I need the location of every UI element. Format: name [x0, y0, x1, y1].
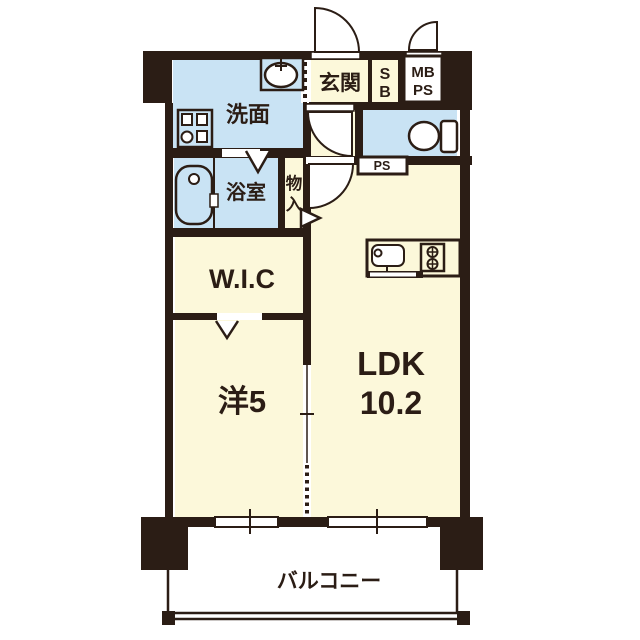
- entrance-step: [306, 104, 354, 111]
- toilet-tank: [441, 121, 457, 152]
- entrance-threshold: [311, 52, 360, 59]
- wall-bottom-a: [188, 517, 215, 527]
- entrance-label: 玄関: [319, 71, 361, 95]
- pipespace-label: PS: [374, 159, 391, 173]
- washer-pan-corner-tl: [182, 114, 192, 125]
- ldk-label-line2: 10.2: [360, 385, 422, 421]
- sliding-window-left: [215, 517, 278, 527]
- washing-machine-icon: [178, 110, 212, 147]
- meterbox-label-line1: MB: [411, 64, 434, 81]
- wic-label: W.I.C: [209, 264, 275, 294]
- wic-door-opening: [217, 313, 262, 320]
- kitchen-counter-icon: [367, 240, 460, 278]
- wall-left: [165, 103, 173, 517]
- balcony-label: バルコニー: [277, 570, 382, 593]
- bath-door-handle: [210, 194, 218, 207]
- ldk-label-line1: LDK: [357, 345, 425, 382]
- ldk-door-opening: [306, 157, 354, 164]
- kitchen-faucet-circle: [375, 250, 382, 257]
- ldk-floor: [311, 165, 460, 517]
- pillar-bottom-right: [440, 517, 483, 570]
- toilet-bowl: [409, 122, 439, 150]
- bathroom-label: 浴室: [226, 180, 266, 204]
- railing-foot-right: [457, 611, 470, 625]
- entrance-door-arc: [315, 8, 359, 52]
- western-room-label: 洋5: [218, 384, 266, 419]
- washer-drain-circle: [182, 132, 193, 143]
- wall-storage-left: [278, 158, 285, 228]
- wall-entrance-sb: [368, 60, 372, 103]
- storage-label-line2: 入: [286, 195, 303, 214]
- meterbox-door-arc: [409, 22, 437, 50]
- wall-right: [460, 60, 470, 517]
- shoebox-label-line1: S: [380, 66, 391, 83]
- washer-pan-corner-tr: [197, 114, 207, 125]
- railing-foot-left: [162, 611, 175, 625]
- shoebox-label-line2: B: [379, 84, 391, 101]
- floorplan: 洗面 玄関 S B MB PS PS 浴室 物 入 W.I.C 洋5 LDK 1…: [0, 0, 640, 640]
- sink-icon: [261, 58, 303, 90]
- wall-bottom-b: [278, 517, 328, 527]
- pillar-top-left: [143, 51, 172, 103]
- floorplan-svg: 洗面 玄関 S B MB PS PS 浴室 物 入 W.I.C 洋5 LDK 1…: [0, 0, 640, 640]
- toilet-icon: [409, 121, 457, 152]
- kitchen-front-edge-inner: [370, 273, 416, 277]
- wall-toilet-left: [355, 110, 363, 156]
- pillar-bottom-left: [141, 517, 188, 570]
- washroom-label: 洗面: [226, 102, 270, 127]
- bathtub-faucet: [189, 174, 199, 184]
- meterbox-label-line2: PS: [413, 82, 433, 99]
- storage-label-line1: 物: [286, 173, 303, 193]
- washer-pan-corner-br: [197, 131, 207, 142]
- wall-bath-wic: [165, 228, 311, 237]
